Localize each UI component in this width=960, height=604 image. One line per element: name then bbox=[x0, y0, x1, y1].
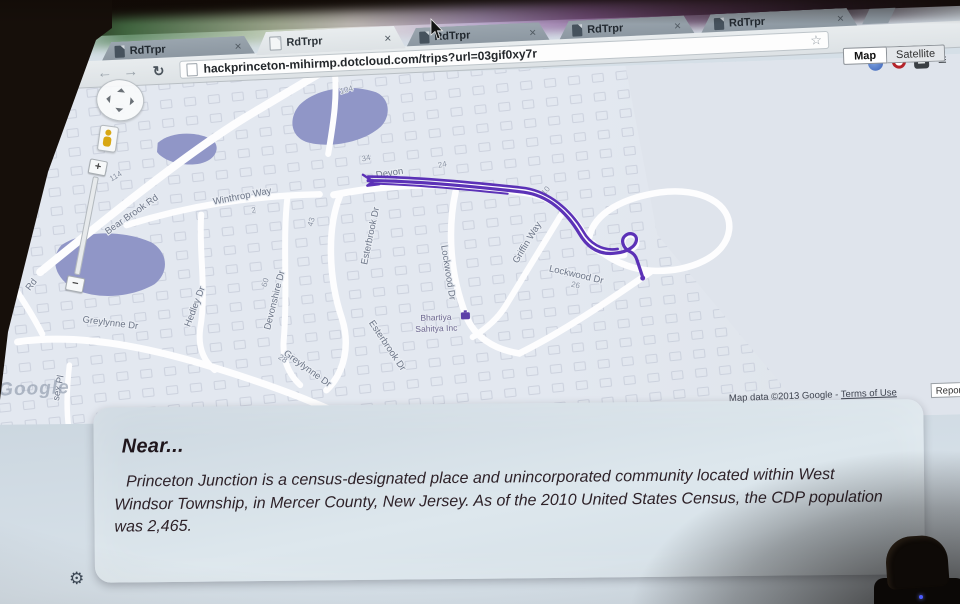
page-icon bbox=[186, 63, 198, 76]
page-favicon-icon bbox=[269, 36, 282, 51]
tab-close-icon[interactable]: × bbox=[234, 40, 242, 52]
pan-right-icon[interactable] bbox=[130, 97, 139, 106]
pegman-streetview-icon[interactable] bbox=[97, 124, 119, 152]
google-watermark: Google bbox=[0, 377, 70, 401]
page-favicon-icon bbox=[714, 18, 725, 30]
location-info-card: Near... Princeton Junction is a census-d… bbox=[93, 399, 925, 583]
page-favicon-icon bbox=[572, 24, 583, 36]
card-body-text: Princeton Junction is a census-designate… bbox=[114, 463, 891, 539]
page-favicon-icon bbox=[114, 45, 125, 57]
page-favicon-icon bbox=[419, 31, 430, 43]
poi-label-line2: Sahitya Inc bbox=[415, 323, 458, 334]
tab-close-icon[interactable]: × bbox=[384, 32, 392, 44]
reload-button[interactable]: ↻ bbox=[149, 61, 168, 80]
tab-close-icon[interactable]: × bbox=[837, 12, 845, 24]
zoom-out-button[interactable]: − bbox=[65, 275, 86, 293]
report-map-error-button[interactable]: Report a map error bbox=[931, 379, 960, 398]
map-graphics: Bear Brook Rd 114 104 Winthrop Way 2 Est… bbox=[0, 52, 960, 448]
map-view-button[interactable]: Map bbox=[843, 46, 888, 65]
terms-of-use-link[interactable]: Terms of Use bbox=[841, 387, 897, 400]
pan-up-icon[interactable] bbox=[117, 84, 126, 93]
browser-window: Bear Brook Rd 114 104 Winthrop Way 2 Est… bbox=[0, 4, 960, 604]
tab-label: RdTrpr bbox=[286, 32, 378, 48]
settings-gear-icon[interactable]: ⚙ bbox=[69, 570, 84, 587]
page-lower-section: Near... Princeton Junction is a census-d… bbox=[0, 414, 960, 604]
projected-screen-photo: Bear Brook Rd 114 104 Winthrop Way 2 Est… bbox=[0, 0, 960, 604]
tab-close-icon[interactable]: × bbox=[529, 26, 537, 38]
card-title: Near... bbox=[122, 427, 924, 458]
bookmark-star-icon[interactable]: ☆ bbox=[810, 32, 822, 49]
tab-close-icon[interactable]: × bbox=[674, 20, 682, 32]
tab-label: RdTrpr bbox=[587, 20, 668, 36]
pan-down-icon[interactable] bbox=[115, 108, 124, 117]
mouse-cursor bbox=[430, 18, 446, 45]
projector-dome bbox=[884, 534, 949, 590]
zoom-in-button[interactable]: + bbox=[88, 158, 109, 176]
pan-left-icon[interactable] bbox=[102, 94, 111, 103]
satellite-view-button[interactable]: Satellite bbox=[887, 44, 946, 63]
poi-label-line1: Bhartiya bbox=[420, 312, 452, 323]
projector-led bbox=[919, 595, 923, 599]
map-canvas[interactable]: Bear Brook Rd 114 104 Winthrop Way 2 Est… bbox=[0, 52, 960, 448]
new-tab-button[interactable] bbox=[862, 8, 895, 25]
